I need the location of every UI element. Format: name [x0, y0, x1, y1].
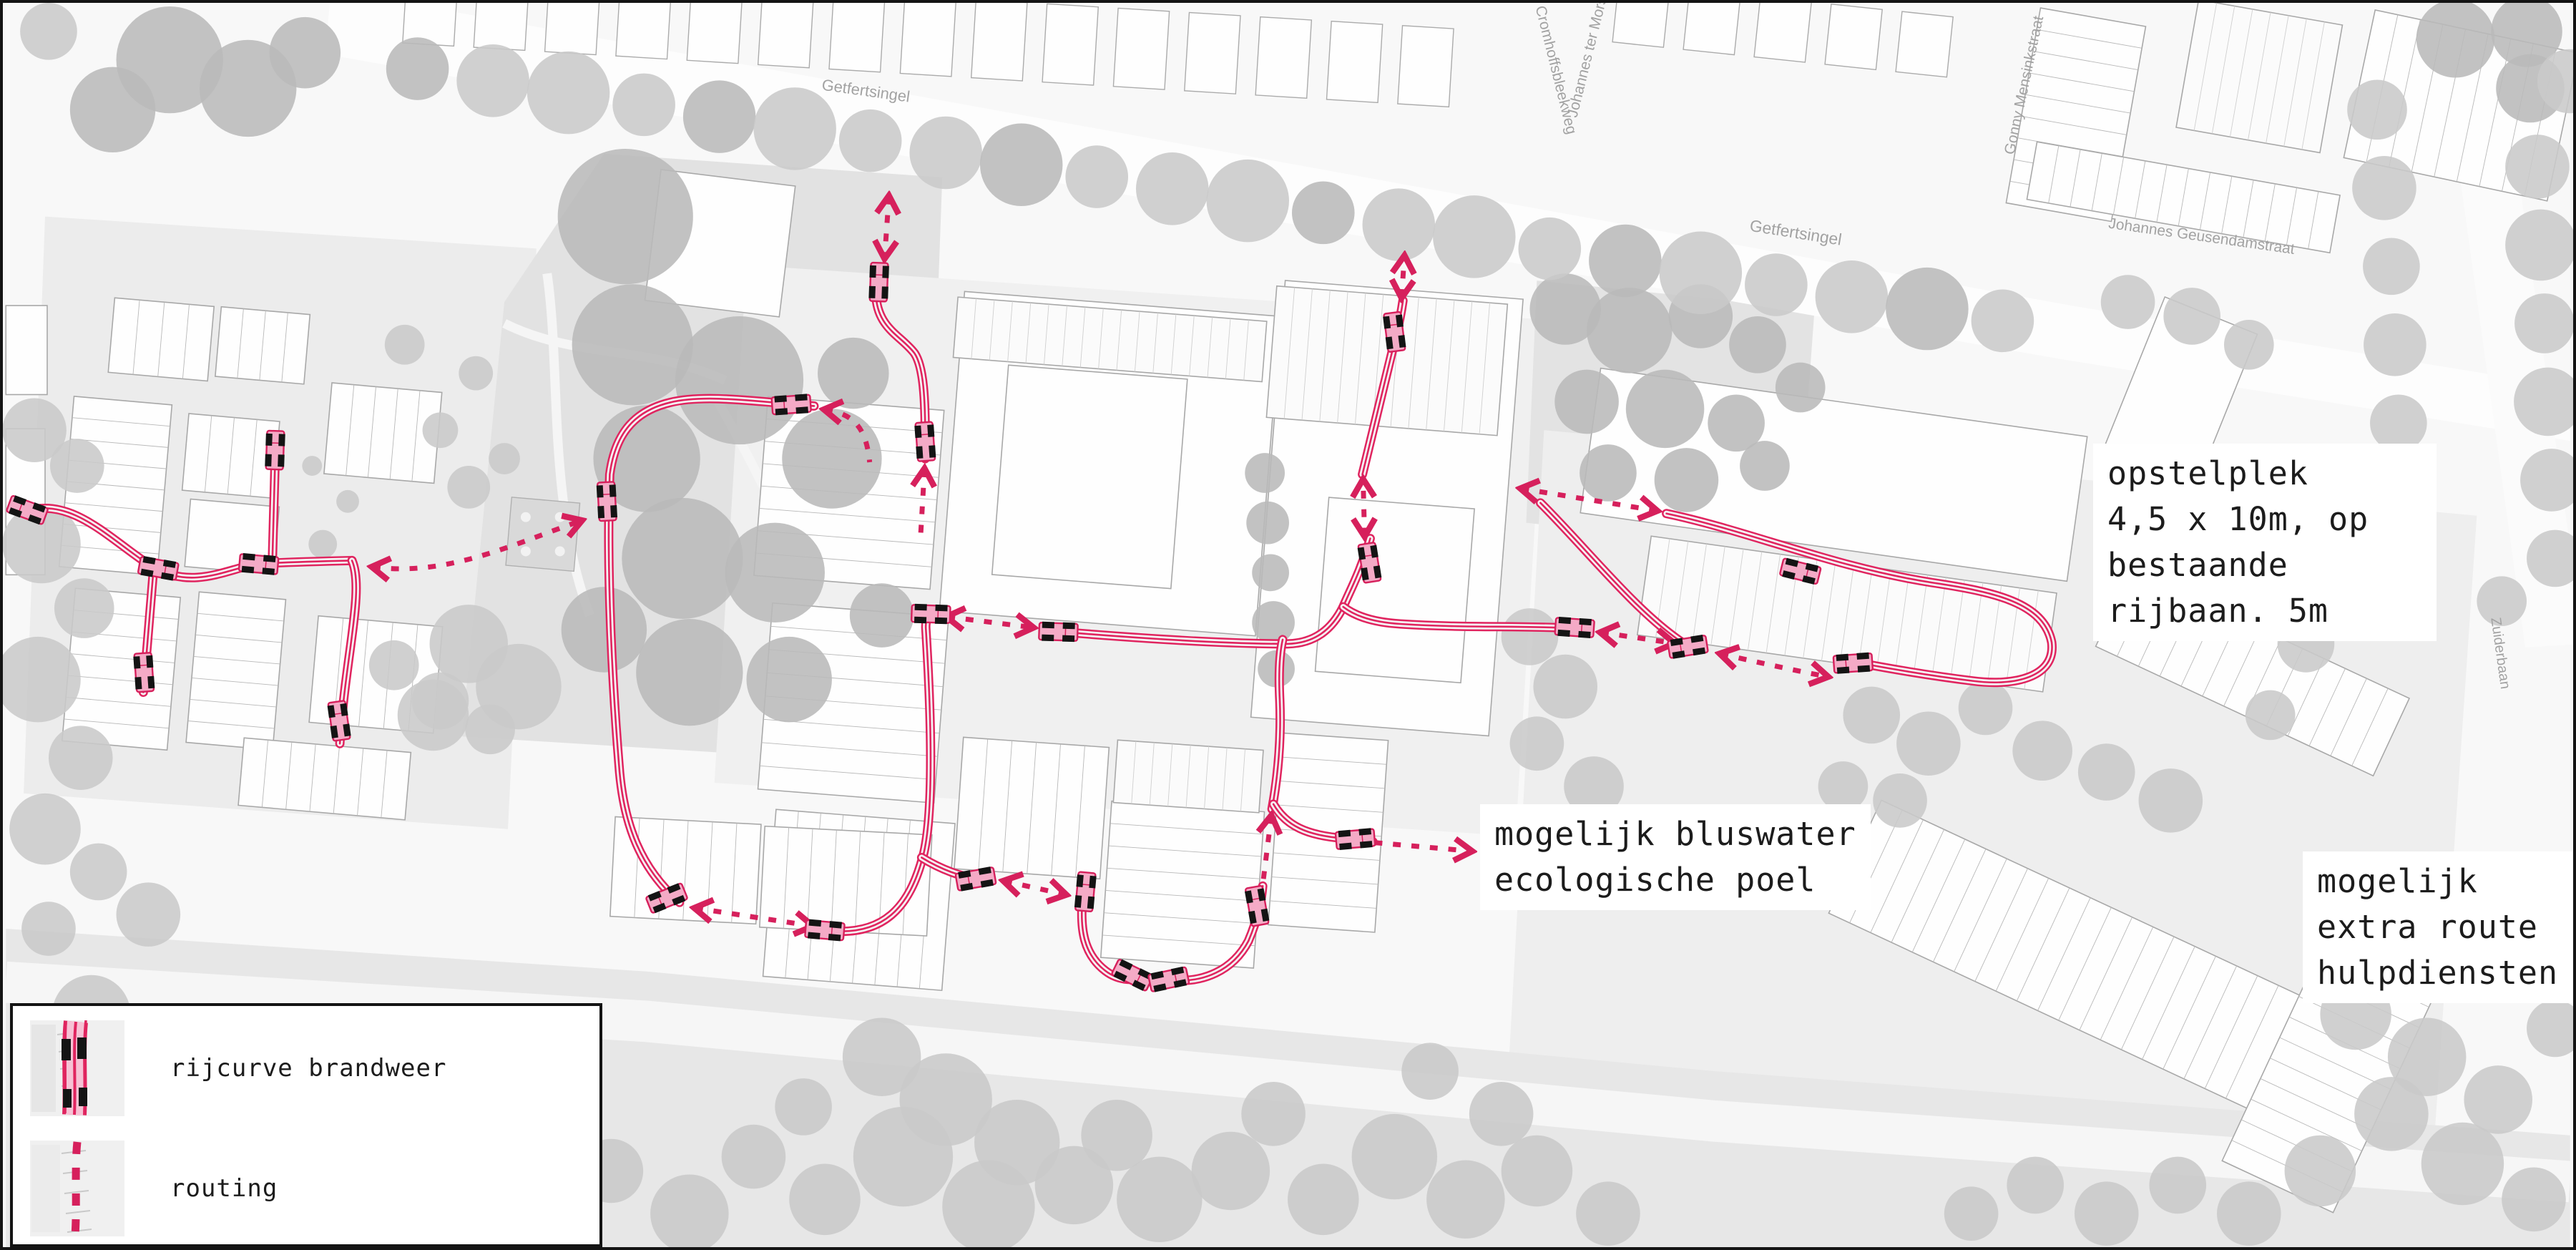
fire-truck-symbol — [771, 394, 810, 416]
fire-truck-symbol — [911, 604, 951, 625]
fire-truck-symbol — [1554, 617, 1594, 639]
legend-item-rijcurve: rijcurve brandweer — [30, 1020, 599, 1116]
legend: rijcurve brandweer routing — [10, 1003, 602, 1247]
fire-truck-symbol — [1039, 622, 1078, 643]
annotation-extra-route: mogelijk extra route hulpdiensten — [2303, 851, 2575, 1003]
fire-truck-symbol — [805, 919, 845, 941]
fire-truck-symbol — [133, 653, 155, 692]
fire-truck-symbol — [1833, 652, 1873, 674]
legend-item-routing: routing — [30, 1141, 599, 1236]
legend-label-routing: routing — [170, 1174, 278, 1203]
annotation-opstelplek: opstelplek 4,5 x 10m, op bestaande rijba… — [2093, 444, 2437, 641]
fire-truck-symbol — [597, 482, 618, 521]
fire-truck-symbol — [239, 553, 279, 575]
routing-swatch-icon — [30, 1141, 124, 1236]
fire-truck-symbol — [868, 263, 889, 302]
rijcurve-swatch-icon — [30, 1020, 124, 1116]
site-plan-page: Getfertsingel Getfertsingel Cromhoffsble… — [0, 0, 2576, 1250]
fire-truck-symbol — [1074, 871, 1097, 912]
fire-truck-symbol — [1336, 828, 1376, 850]
fire-truck-symbol — [914, 421, 936, 461]
annotation-bluswater: mogelijk bluswater ecologische poel — [1480, 804, 1871, 910]
legend-label-rijcurve: rijcurve brandweer — [170, 1054, 446, 1083]
fire-truck-symbol — [265, 431, 285, 470]
